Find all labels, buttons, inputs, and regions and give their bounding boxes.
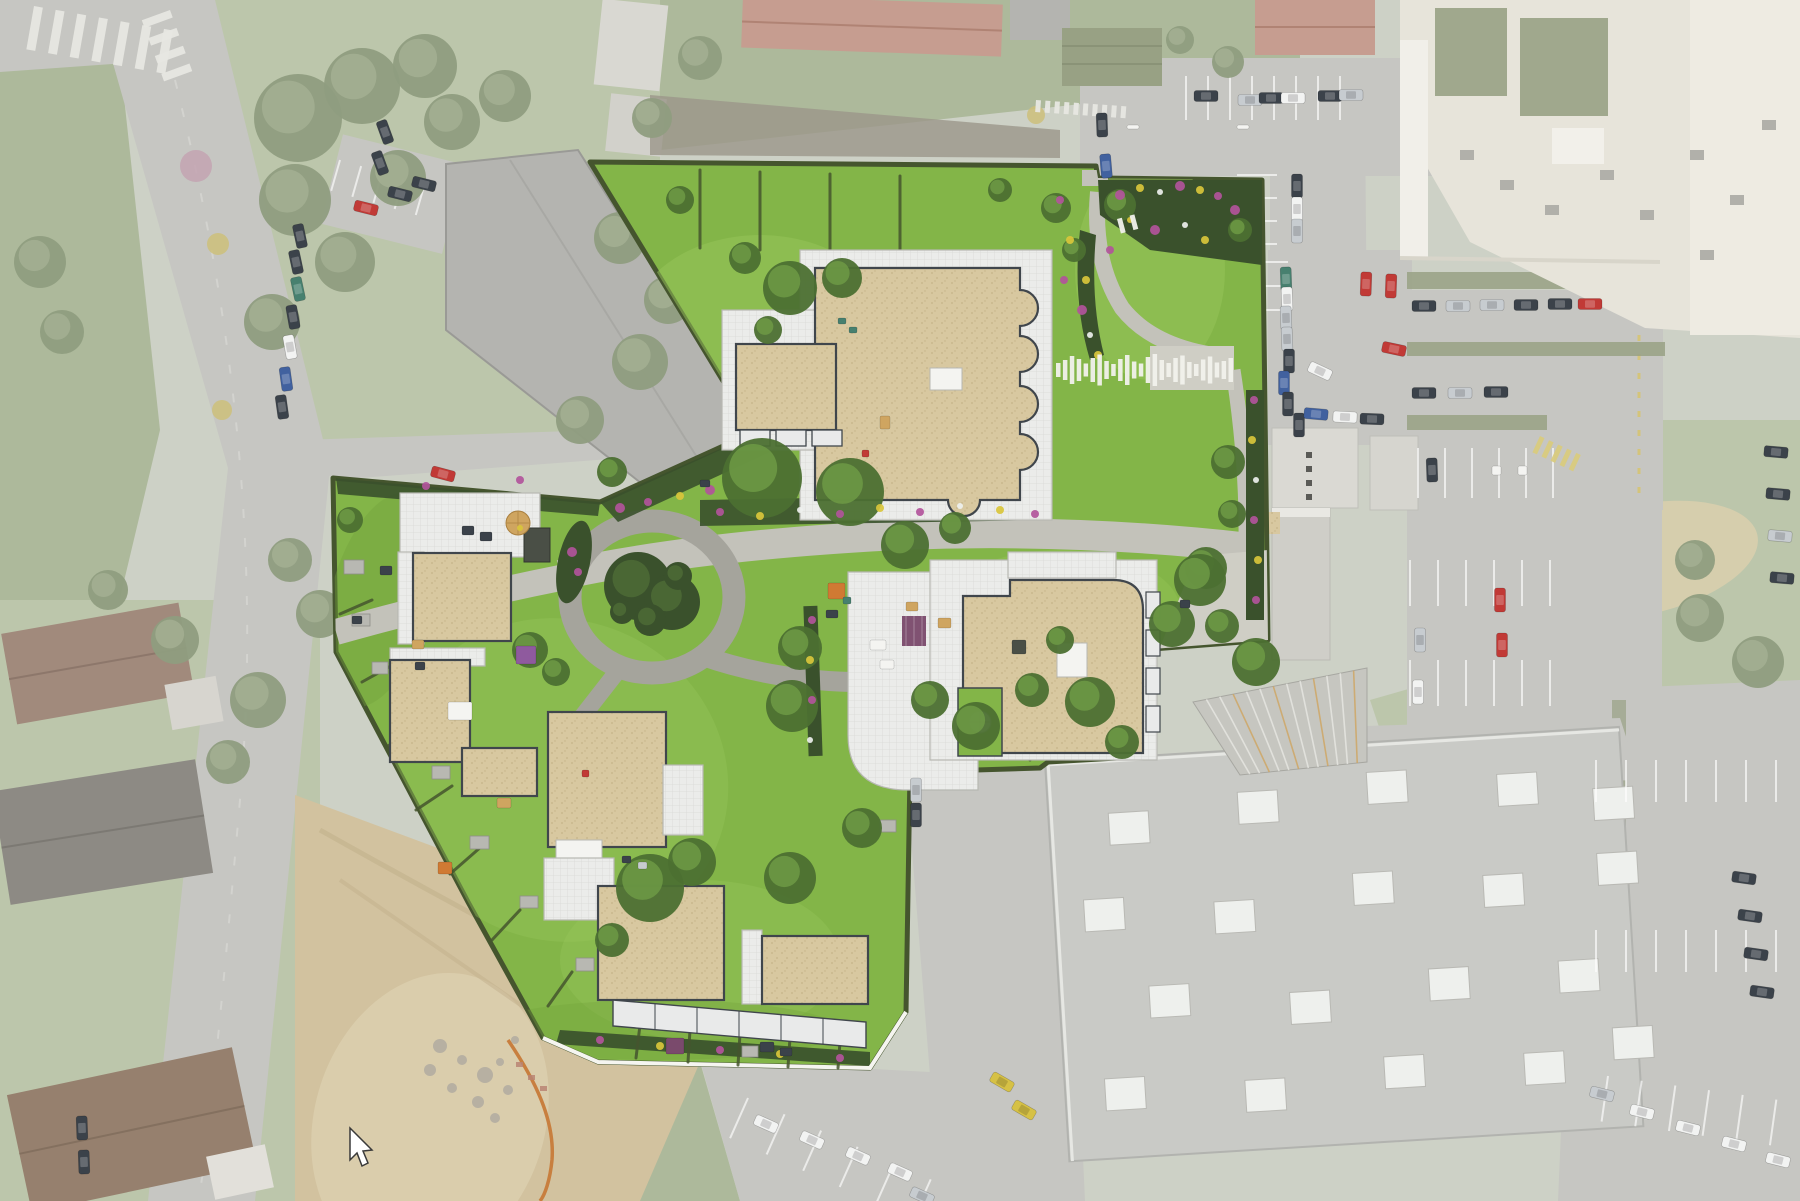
car-roof <box>912 785 920 795</box>
hedge-divider <box>688 1030 690 1062</box>
furniture-item <box>870 640 886 650</box>
house-red-roof-2 <box>1255 0 1375 55</box>
faded-tree-highlight <box>320 237 356 273</box>
rubble <box>457 1055 467 1065</box>
car-roof <box>1102 161 1110 172</box>
flower-cluster <box>1175 181 1185 191</box>
stripe <box>1084 364 1089 377</box>
car <box>1412 301 1436 312</box>
car-roof <box>1293 181 1301 191</box>
furniture-item <box>352 616 362 624</box>
car-roof <box>1419 389 1429 397</box>
rubble <box>433 1039 447 1053</box>
flower-cluster <box>1150 225 1160 235</box>
garden-patio <box>576 958 594 971</box>
stripe <box>1173 358 1178 382</box>
rubble <box>447 1083 457 1093</box>
rubble <box>503 1085 513 1095</box>
car-roof <box>912 810 920 820</box>
stripe <box>1070 356 1075 384</box>
faded-tree-highlight <box>19 240 50 271</box>
flower-cluster <box>716 508 724 516</box>
tree-highlight <box>956 706 985 735</box>
wall-building-ledge <box>1272 508 1330 517</box>
house-red-roof-1 <box>741 0 1003 57</box>
rubble <box>496 1058 504 1066</box>
car-roof <box>80 1157 88 1167</box>
flower-cluster <box>1182 222 1188 228</box>
faded-tree-highlight <box>1679 543 1703 567</box>
car <box>1578 299 1602 310</box>
brick-debris <box>516 1062 523 1067</box>
faded-tree-highlight <box>399 39 437 77</box>
car <box>1281 93 1305 104</box>
car <box>1768 529 1793 542</box>
flower-cluster <box>596 1036 604 1044</box>
tree-highlight <box>669 188 686 205</box>
car-roof <box>1280 378 1288 388</box>
tree-highlight <box>672 842 701 871</box>
car-roof <box>1295 420 1303 430</box>
car <box>911 803 922 827</box>
car <box>1292 219 1303 243</box>
car-roof <box>1387 281 1395 291</box>
furniture-item <box>448 702 472 720</box>
car <box>1333 411 1358 423</box>
car <box>1259 93 1283 104</box>
tree-highlight <box>1208 612 1228 632</box>
island-shrub-highlight <box>613 560 650 597</box>
garden-patio <box>372 662 388 674</box>
car-roof <box>1775 532 1786 540</box>
car <box>1415 628 1426 652</box>
car-roof <box>1585 300 1595 308</box>
car <box>1096 113 1108 137</box>
stripe <box>1194 364 1199 376</box>
flower-cluster <box>1252 596 1260 604</box>
tree-highlight <box>545 660 562 677</box>
skylight <box>1497 772 1539 806</box>
flower-cluster <box>1214 192 1222 200</box>
tree-highlight <box>1236 642 1265 671</box>
stripe <box>1139 364 1144 377</box>
faded-tree-highlight <box>44 313 70 339</box>
faded-tree-highlight <box>155 620 184 649</box>
furniture-item <box>938 618 951 628</box>
stripe <box>1187 362 1192 378</box>
flower-cluster <box>1056 196 1064 204</box>
car-roof <box>78 1123 86 1133</box>
tree-highlight <box>768 265 800 297</box>
car-roof <box>1773 490 1784 498</box>
flower-cluster <box>1115 190 1125 200</box>
furniture-item <box>862 450 869 457</box>
skylight <box>1366 770 1408 804</box>
aerial-masterplan-viewport[interactable] <box>0 0 1800 1201</box>
garden-patio <box>880 820 896 832</box>
tree-highlight <box>1018 676 1038 696</box>
skylight <box>1290 990 1332 1024</box>
tree-highlight <box>914 684 937 707</box>
car <box>1318 91 1342 102</box>
furniture-item <box>582 770 589 777</box>
flower-cluster <box>656 1042 664 1050</box>
flower-cluster <box>1250 516 1258 524</box>
stripe <box>1229 358 1234 382</box>
garden-patio <box>344 560 364 574</box>
car <box>1292 174 1303 198</box>
faded-tree-highlight <box>484 74 515 105</box>
car-roof <box>1455 389 1465 397</box>
white-building-2 <box>1370 436 1418 510</box>
flower-cluster <box>615 503 625 513</box>
car-roof <box>1521 301 1531 309</box>
furniture-item <box>906 602 918 611</box>
car <box>1279 371 1290 395</box>
garage-bl <box>164 676 223 730</box>
flower-cluster <box>807 737 813 743</box>
flower-cluster <box>1136 184 1144 192</box>
stripe <box>1208 357 1213 384</box>
car <box>1484 387 1508 398</box>
lane-bottom-center <box>700 1060 1080 1201</box>
car <box>1294 413 1305 437</box>
tree-highlight <box>600 459 618 477</box>
car <box>1238 95 1262 106</box>
tree-highlight <box>885 525 914 554</box>
hedge-divider <box>738 1034 740 1065</box>
faded-tree-highlight <box>249 298 283 332</box>
garden-plots <box>1062 28 1162 86</box>
faded-tree-highlight <box>1169 28 1186 45</box>
car-roof <box>1282 274 1290 284</box>
furniture-item <box>880 416 890 429</box>
furniture-item <box>497 798 511 808</box>
car-roof <box>1283 294 1291 304</box>
flower-cluster <box>1066 236 1074 244</box>
stripe <box>1215 363 1220 378</box>
tree-highlight <box>1049 628 1066 645</box>
faded-tree-highlight <box>617 338 651 372</box>
stripe <box>1111 364 1116 376</box>
rubble <box>511 1036 519 1044</box>
faded-tree-highlight <box>1215 48 1234 67</box>
furniture-item <box>838 318 846 324</box>
tree-highlight <box>1108 728 1128 748</box>
car-roof <box>1282 313 1290 323</box>
furniture-item <box>480 532 492 541</box>
car-roof <box>282 374 291 385</box>
stripe <box>1064 102 1070 114</box>
car-roof <box>1266 94 1276 102</box>
furniture-item <box>700 480 710 487</box>
faded-tree-highlight <box>235 676 269 710</box>
furniture-item <box>438 862 452 874</box>
garden-patio <box>432 766 450 779</box>
skylight <box>1352 871 1394 905</box>
hedge-strip-3 <box>1407 415 1547 430</box>
stripe <box>1063 360 1068 380</box>
flower-cluster <box>836 1054 844 1062</box>
car <box>911 778 922 802</box>
furniture-item <box>380 566 392 575</box>
car-roof <box>1285 356 1293 366</box>
stripe <box>1166 363 1171 377</box>
car <box>1194 91 1218 102</box>
furniture-item <box>843 597 851 604</box>
flower-cluster <box>1248 436 1256 444</box>
flower-cluster <box>676 492 684 500</box>
faded-tree-highlight <box>682 39 708 65</box>
tree-highlight <box>782 629 808 655</box>
tree-highlight <box>1070 681 1100 711</box>
car <box>1495 588 1506 612</box>
car-roof <box>1757 988 1768 997</box>
tree-highlight <box>846 811 870 835</box>
car <box>1497 633 1508 657</box>
car-roof <box>1311 410 1322 418</box>
brick-debris <box>528 1075 535 1080</box>
stripe <box>1146 357 1151 383</box>
furniture-item <box>880 660 894 669</box>
car <box>1292 197 1303 221</box>
skylight <box>1524 1051 1566 1085</box>
car <box>1099 154 1112 179</box>
car <box>1448 388 1472 399</box>
faded-tree-highlight <box>429 98 463 132</box>
brick-debris <box>540 1086 547 1091</box>
tree-highlight <box>732 244 751 263</box>
furniture-item <box>760 1042 774 1052</box>
faded-tree-highlight <box>272 541 298 567</box>
car-roof <box>1496 595 1504 605</box>
car <box>1514 300 1538 311</box>
car-roof <box>1284 399 1292 409</box>
flower-cluster <box>1250 396 1258 404</box>
car <box>1339 90 1363 101</box>
tree-highlight <box>769 856 800 887</box>
tree-highlight <box>729 444 777 492</box>
warehouse <box>1045 726 1658 1161</box>
umbrella-tan <box>506 511 530 535</box>
tree-highlight <box>1214 448 1234 468</box>
faded-tree-highlight <box>210 743 236 769</box>
stripe <box>1054 101 1060 113</box>
faded-tree-highlight <box>262 81 315 134</box>
flower-cluster <box>716 1046 724 1054</box>
flower-cluster <box>1253 477 1259 483</box>
car <box>1764 445 1789 458</box>
flower-cluster <box>1201 236 1209 244</box>
car-roof <box>1745 912 1756 921</box>
car <box>78 1150 90 1174</box>
rubble <box>472 1096 484 1108</box>
furniture-item <box>828 583 845 599</box>
faded-tree-highlight <box>300 594 329 623</box>
car-roof <box>1245 96 1255 104</box>
car <box>1304 407 1329 420</box>
flower-cluster <box>1196 186 1204 194</box>
stripe <box>1180 356 1185 385</box>
car <box>1446 301 1470 312</box>
skylight <box>1083 897 1125 931</box>
flower-cluster <box>808 616 816 624</box>
blossom-tree <box>212 400 232 420</box>
wall-building <box>1272 508 1330 660</box>
faded-tree-highlight <box>331 54 377 100</box>
stripe <box>1056 363 1061 377</box>
car-roof <box>1414 687 1422 697</box>
car <box>1770 571 1795 584</box>
skylight <box>1593 786 1635 820</box>
flower-cluster <box>957 503 963 509</box>
shed-3 <box>1010 0 1070 40</box>
furniture-item <box>1518 466 1527 475</box>
skylight <box>1428 967 1470 1001</box>
car-roof <box>1288 94 1298 102</box>
skylight <box>1558 959 1600 993</box>
faded-tree-highlight <box>1737 640 1768 671</box>
car-roof <box>1098 120 1106 130</box>
furniture-item <box>1127 125 1139 129</box>
furniture-item <box>638 862 647 869</box>
car-roof <box>1283 334 1291 344</box>
furniture-item <box>1180 600 1190 608</box>
furniture-item <box>1012 640 1026 654</box>
tree-highlight <box>598 926 618 946</box>
car <box>1280 306 1292 330</box>
stripe <box>1045 101 1051 113</box>
car-roof <box>1346 91 1356 99</box>
flower-cluster <box>516 476 524 484</box>
tree-highlight <box>771 684 802 715</box>
island-shrub-highlight <box>668 565 683 580</box>
car-roof <box>1201 92 1211 100</box>
car <box>1281 327 1293 351</box>
stripe <box>1153 354 1158 386</box>
car-roof <box>1453 302 1463 310</box>
skylight <box>1108 811 1150 845</box>
shed-1 <box>594 0 669 91</box>
rubble <box>490 1113 500 1123</box>
tree-highlight <box>990 180 1004 194</box>
furniture-item <box>780 1048 792 1056</box>
blossom-tree <box>207 233 229 255</box>
car-roof <box>1487 301 1497 309</box>
flower-cluster <box>797 507 803 513</box>
flower-cluster <box>1230 205 1240 215</box>
stripe <box>1077 359 1082 381</box>
furniture-item <box>516 646 536 664</box>
furniture-item <box>622 856 631 863</box>
flower-cluster <box>996 506 1004 514</box>
skylight <box>1104 1077 1146 1111</box>
car-roof <box>278 402 287 413</box>
furniture-item <box>412 640 424 649</box>
car <box>1426 458 1438 482</box>
car-roof <box>1491 388 1501 396</box>
tree-highlight <box>1221 502 1238 519</box>
flower-cluster <box>836 510 844 518</box>
stripe <box>1125 355 1130 385</box>
stripe <box>1118 359 1123 381</box>
car-roof <box>1777 574 1788 582</box>
flower-cluster <box>574 568 582 576</box>
flower-cluster <box>806 656 814 664</box>
rubble <box>424 1064 436 1076</box>
faded-tree-highlight <box>560 400 589 429</box>
stripe <box>1035 100 1041 112</box>
hedge-strip-2 <box>1407 342 1665 356</box>
car-roof <box>1555 300 1565 308</box>
faded-tree-highlight <box>636 101 660 125</box>
tree-highlight <box>826 261 850 285</box>
car <box>1766 487 1791 500</box>
car-roof <box>1751 950 1762 959</box>
furniture-item <box>849 327 857 333</box>
car <box>1360 272 1372 296</box>
flower-cluster <box>808 696 816 704</box>
flower-cluster <box>1060 276 1068 284</box>
stripe <box>1160 360 1165 380</box>
loop-island-shrubs <box>604 552 700 636</box>
flower-cluster <box>876 504 884 512</box>
flower-cluster <box>1077 305 1087 315</box>
blossom-tree <box>180 150 212 182</box>
faded-tree-highlight <box>92 573 116 597</box>
stripe <box>1132 362 1137 379</box>
skylight <box>1612 1025 1654 1059</box>
stripe <box>1073 103 1079 115</box>
flower-cluster <box>517 525 523 531</box>
tree-highlight <box>942 514 961 533</box>
car <box>1284 349 1295 373</box>
flower-cluster <box>756 512 764 520</box>
tree-highlight <box>1230 220 1244 234</box>
garden-patio <box>520 896 538 908</box>
central-pergola <box>902 616 926 646</box>
flower-cluster <box>1106 246 1114 254</box>
flower-cluster <box>422 482 430 490</box>
car-roof <box>1498 640 1506 650</box>
stripe <box>1104 361 1109 379</box>
stripe <box>1091 358 1096 382</box>
car <box>1413 680 1424 704</box>
flower-cluster <box>1157 189 1163 195</box>
stripe <box>1120 106 1126 118</box>
flower-cluster <box>644 498 652 506</box>
rubble <box>477 1067 493 1083</box>
stripe <box>1201 360 1206 381</box>
car-roof <box>1419 302 1429 310</box>
car-roof <box>1428 465 1436 475</box>
stripe <box>1083 103 1089 115</box>
flower-cluster <box>1254 556 1262 564</box>
skylight <box>1597 851 1639 885</box>
skylight <box>1384 1054 1426 1088</box>
car <box>1283 392 1294 416</box>
flower-cluster <box>1031 510 1039 518</box>
car-roof <box>1293 226 1301 236</box>
skylight <box>1214 900 1256 934</box>
stripe <box>1222 361 1227 379</box>
white-building-1 <box>1272 428 1358 508</box>
car-roof <box>1325 92 1335 100</box>
skylight <box>1237 790 1279 824</box>
skylight <box>1483 873 1525 907</box>
garden-patio <box>742 1046 758 1057</box>
car-roof <box>1340 413 1350 421</box>
